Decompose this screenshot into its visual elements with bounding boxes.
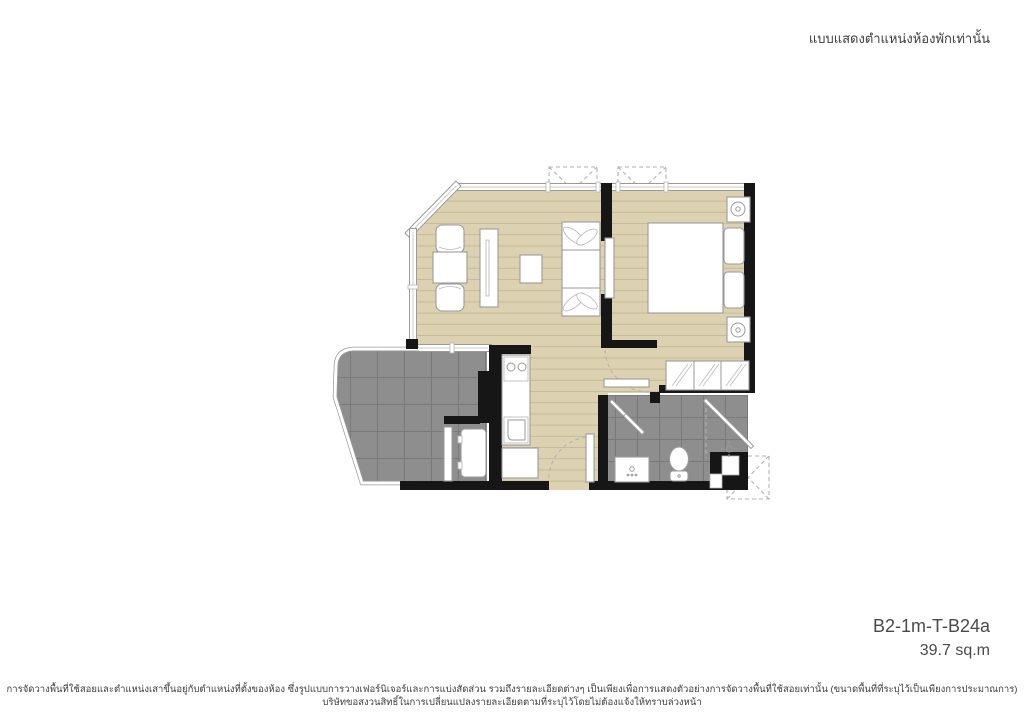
dining-chair-top (436, 225, 464, 253)
unit-area: 39.7 sq.m (873, 639, 990, 663)
toilet (670, 447, 689, 481)
unit-code: B2-1m-T-B24a (873, 614, 990, 639)
footer-disclaimer: การจัดวางพื้นที่ใช้สอยและตำแหน่งเสาขึ้นอ… (0, 683, 1024, 709)
vanity-basin (615, 457, 649, 482)
tv-console (480, 229, 498, 307)
wall-kitchen-top (489, 345, 531, 354)
pillow-top (724, 228, 744, 264)
balcony-items (444, 427, 486, 481)
fridge (502, 448, 538, 478)
pillow-bottom (724, 272, 744, 308)
dining-chair-bottom (436, 284, 464, 311)
wall-divider-upper (601, 183, 612, 241)
unit-info: B2-1m-T-B24a 39.7 sq.m (873, 614, 990, 663)
shower-niche (710, 452, 748, 488)
bedroom-sliding-door (605, 238, 614, 298)
wall-bathroom-stub (650, 392, 660, 403)
ac-condenser-unit (458, 429, 486, 477)
wall-bathroom-left (598, 395, 608, 483)
wall-bottom-left (400, 481, 549, 490)
sofa (561, 222, 600, 316)
wardrobe (666, 361, 749, 390)
wall-alcove-top (444, 416, 480, 424)
wall-bedroom-bottom (601, 340, 657, 348)
wall-column (478, 371, 502, 423)
dining-table (433, 252, 467, 283)
wall-living-corner (406, 339, 418, 349)
kitchen-sink (504, 417, 528, 443)
nightstand-top (727, 197, 750, 222)
floor-plan-page: แบบแสดงตำแหน่งห้องพักเท่านั้น B2-1m-T-B2… (0, 0, 1024, 724)
wall-divider-lower (601, 294, 612, 348)
nightstand-bottom (727, 317, 750, 342)
plan-disclaimer-note: แบบแสดงตำแหน่งห้องพักเท่านั้น (809, 28, 990, 49)
footer-line-1: การจัดวางพื้นที่ใช้สอยและตำแหน่งเสาขึ้นอ… (0, 683, 1024, 696)
stove-hob (504, 357, 528, 381)
side-table (520, 255, 542, 283)
footer-line-2: บริษัทขอสงวนสิทธิ์ในการเปลี่ยนแปลงรายละเ… (0, 696, 1024, 709)
floor-plan-drawing (0, 0, 1024, 724)
alcove-glass-partition (444, 427, 452, 481)
